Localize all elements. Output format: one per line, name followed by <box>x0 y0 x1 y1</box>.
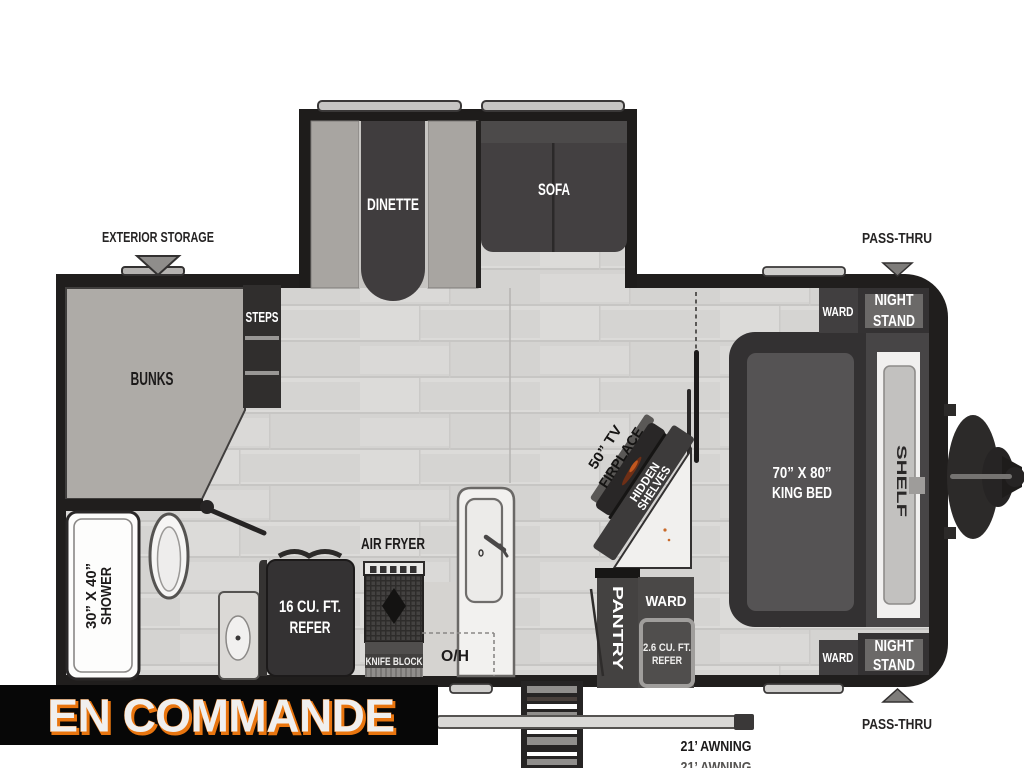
svg-text:2.6 CU. FT.: 2.6 CU. FT. <box>643 642 691 654</box>
svg-text:KNIFE BLOCK: KNIFE BLOCK <box>366 656 423 668</box>
svg-text:AIR FRYER: AIR FRYER <box>361 536 425 553</box>
svg-text:KING BED: KING BED <box>772 485 832 502</box>
svg-text:REFER: REFER <box>290 618 331 637</box>
svg-text:PASS-THRU: PASS-THRU <box>862 230 932 247</box>
svg-text:STEPS: STEPS <box>246 309 279 326</box>
svg-text:STAND: STAND <box>873 657 915 674</box>
svg-text:EXTERIOR STORAGE: EXTERIOR STORAGE <box>102 229 214 246</box>
svg-text:EN COMMANDE: EN COMMANDE <box>47 690 394 742</box>
svg-text:16 CU. FT.: 16 CU. FT. <box>279 597 341 616</box>
svg-text:SOFA: SOFA <box>538 180 570 199</box>
svg-text:21’ AWNING: 21’ AWNING <box>681 759 752 768</box>
svg-text:NIGHT: NIGHT <box>875 638 914 655</box>
svg-text:STAND: STAND <box>873 313 915 330</box>
svg-text:SHELF: SHELF <box>894 445 910 518</box>
svg-text:WARD: WARD <box>823 304 854 319</box>
svg-text:O/H: O/H <box>441 648 469 665</box>
svg-text:WARD: WARD <box>823 650 854 665</box>
svg-text:SHOWER: SHOWER <box>98 567 115 625</box>
svg-text:DINETTE: DINETTE <box>367 195 419 214</box>
svg-text:PASS-THRU: PASS-THRU <box>862 716 932 733</box>
svg-text:70” X 80”: 70” X 80” <box>773 465 832 482</box>
svg-text:21’ AWNING: 21’ AWNING <box>681 738 752 755</box>
svg-text:WARD: WARD <box>646 593 687 610</box>
svg-text:PANTRY: PANTRY <box>609 586 626 670</box>
svg-text:REFER: REFER <box>652 655 682 667</box>
svg-text:NIGHT: NIGHT <box>875 292 914 309</box>
svg-text:BUNKS: BUNKS <box>131 369 174 389</box>
